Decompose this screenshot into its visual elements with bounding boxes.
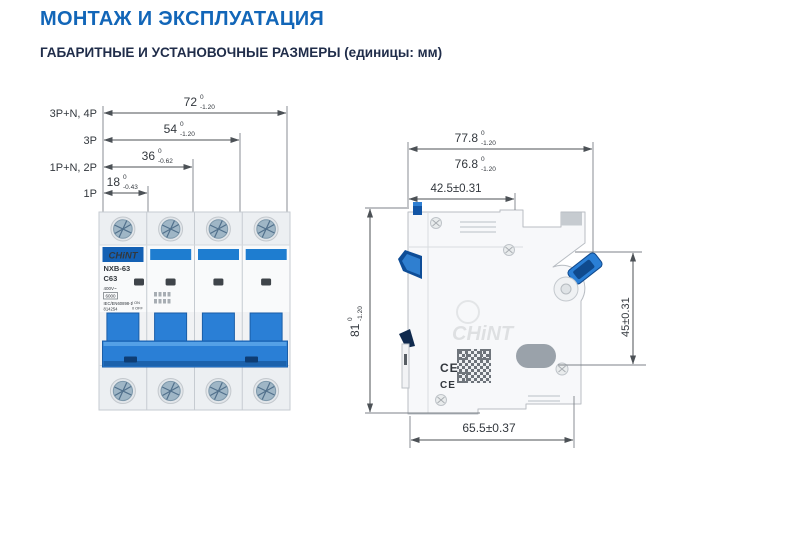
dim-tol-upper: 0: [200, 94, 204, 101]
trip-indicator-window: [134, 279, 144, 286]
blue-band: [246, 249, 287, 260]
trip-indicator-window: [261, 279, 271, 286]
dim-tol-lower: -1.20: [357, 306, 364, 321]
tie-bar-notch: [245, 357, 258, 363]
dim-value-77-8: 77.8: [455, 131, 479, 145]
screw-icon: [206, 217, 230, 241]
front-view-dimensions: 3P+N, 4P 72 0 -1.20 3P 54 0 -1.20 1P+N, …: [50, 94, 287, 212]
standard-label: IEC/EN60898-1: [104, 301, 134, 306]
pole-config-label: 3P+N, 4P: [50, 108, 97, 120]
dim-value-81: 81: [348, 323, 362, 337]
on-mark: I ON: [132, 301, 140, 305]
dim-value-76-8: 76.8: [455, 157, 479, 171]
top-clip-tab-highlight: [413, 202, 422, 206]
screw-icon: [206, 379, 231, 404]
screw-icon: [158, 379, 183, 404]
dim-value-65-5: 65.5±0.37: [462, 421, 516, 435]
din-clip-slot: [404, 354, 407, 365]
screw-icon: [111, 217, 135, 241]
page: МОНТАЖ И ЭКСПЛУАТАЦИЯ ГАБАРИТНЫЕ И УСТАН…: [0, 0, 785, 538]
model-label: NXB-63: [104, 264, 131, 273]
dimension-drawing: 3P+N, 4P 72 0 -1.20 3P 54 0 -1.20 1P+N, …: [0, 0, 785, 538]
dim-tol-lower: -1.20: [481, 166, 496, 173]
trip-indicator-window: [166, 279, 176, 286]
toggle-handle: [155, 313, 187, 344]
toggle-handle: [202, 313, 234, 344]
pole-config-label: 1P+N, 2P: [50, 162, 97, 174]
breaking-capacity-label: 6000: [105, 294, 116, 299]
pivot-screw: [554, 277, 578, 301]
blue-band: [198, 249, 239, 260]
din-clip-foot: [402, 344, 409, 388]
dim-tol-lower: -0.43: [123, 184, 138, 191]
rating-label: C63: [104, 274, 118, 283]
screw-icon: [159, 217, 183, 241]
side-body: [408, 210, 585, 414]
breaker-front-view: CHiNT NXB-63 C63 400V~ 6000 IEC/EN60898-…: [99, 212, 290, 410]
pole-config-label: 3P: [84, 135, 97, 147]
blue-band: [150, 249, 191, 260]
breaker-side-view: CHiNT: [398, 202, 604, 414]
dim-tol-upper: 0: [123, 174, 127, 181]
dim-tol-lower: -1.20: [481, 140, 496, 147]
dim-tol-upper: 0: [481, 130, 485, 137]
din-release-slot: [516, 344, 556, 368]
dim-tol-lower: -1.20: [180, 131, 195, 138]
dim-value-36: 36: [142, 149, 156, 163]
ce-mark: CE: [440, 361, 459, 375]
tie-bar-highlight: [104, 342, 287, 346]
brand-logo: CHiNT: [108, 251, 138, 262]
toggle-handle: [107, 313, 139, 344]
off-mark: 0 OFF: [132, 307, 143, 311]
watermark-brand: CHiNT: [452, 323, 515, 345]
dim-value-42-5: 42.5±0.31: [430, 183, 481, 195]
dim-tol-lower: -0.62: [158, 158, 173, 165]
dim-tol-lower: -1.20: [200, 104, 215, 111]
screw-icon: [254, 217, 278, 241]
dim-tol-upper: 0: [180, 121, 184, 128]
top-terminal-block: [561, 213, 582, 226]
dim-value-18: 18: [107, 175, 121, 189]
qr-code: [457, 349, 491, 383]
trip-indicator-window: [213, 279, 223, 286]
dim-value-54: 54: [164, 122, 178, 136]
toggle-handle: [250, 313, 282, 344]
pole-config-label: 1P: [84, 188, 97, 200]
voltage-label: 400V~: [104, 286, 118, 291]
dim-value-72: 72: [184, 95, 198, 109]
dim-tol-upper: 0: [158, 148, 162, 155]
tie-bar-notch: [124, 357, 137, 363]
screw-icon: [254, 379, 279, 404]
screw-icon: [436, 395, 447, 406]
dim-label-81: 81 0 -1.20: [347, 306, 364, 337]
screw-icon: [431, 218, 442, 229]
conformity-mark: CE: [440, 380, 456, 391]
dim-tol-upper: 0: [481, 156, 485, 163]
screw-icon: [504, 245, 515, 256]
screw-icon: [110, 379, 135, 404]
dim-label-45: 45±0.31: [620, 297, 632, 337]
dim-value-45: 45±0.31: [620, 297, 632, 337]
article-label: 814254: [104, 307, 119, 312]
dim-tol-upper: 0: [347, 317, 354, 321]
